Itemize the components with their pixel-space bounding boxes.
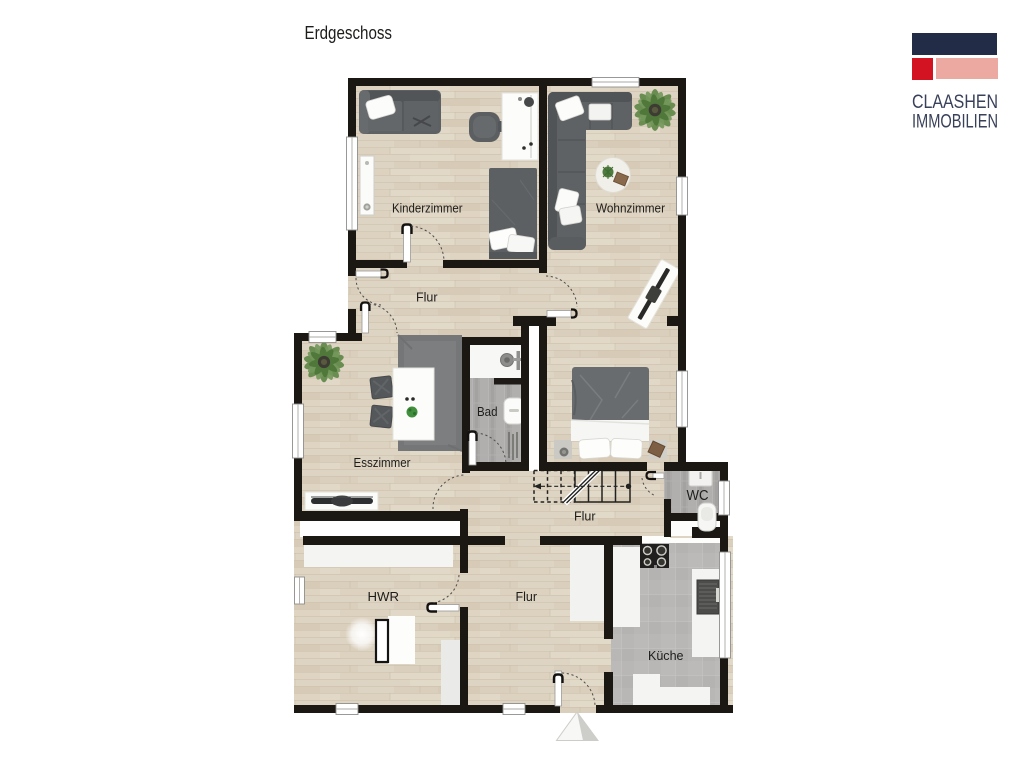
svg-text:Erdgeschoss: Erdgeschoss — [305, 22, 393, 43]
svg-text:Flur: Flur — [574, 509, 596, 524]
svg-text:HWR: HWR — [368, 589, 400, 604]
svg-text:Flur: Flur — [516, 589, 538, 604]
svg-text:WC: WC — [687, 488, 709, 504]
svg-text:Kinderzimmer: Kinderzimmer — [392, 201, 463, 216]
svg-text:Küche: Küche — [648, 648, 684, 663]
svg-text:IMMOBILIEN: IMMOBILIEN — [912, 109, 998, 132]
svg-text:Wohnzimmer: Wohnzimmer — [596, 201, 666, 216]
svg-text:Flur: Flur — [416, 290, 438, 305]
svg-text:Bad: Bad — [477, 404, 498, 419]
svg-text:Esszimmer: Esszimmer — [354, 455, 412, 470]
